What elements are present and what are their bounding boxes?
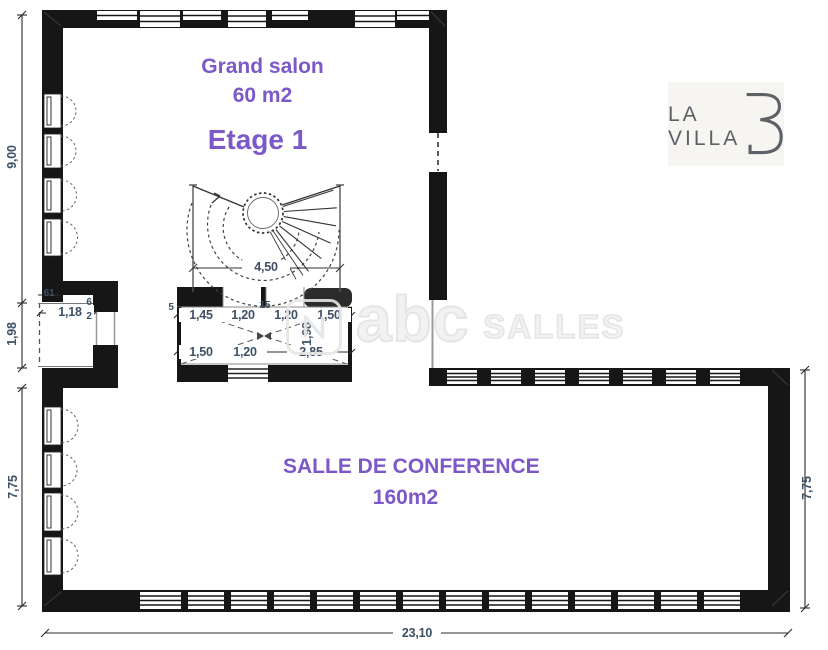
dim-shaft-small-left: 5	[166, 302, 176, 313]
dim-shaft-bottom-2: 1,20	[223, 345, 267, 359]
top-wall-windows	[97, 11, 433, 27]
floorplan-page: Grand salon 60 m2 Etage 1 SALLE DE CONFE…	[0, 0, 828, 650]
brand-b-icon	[744, 86, 784, 162]
dim-left-top: 9,00	[5, 137, 19, 177]
dim-left-bottom: 7,75	[6, 467, 20, 507]
dim-shaft-bottom-1: 1,50	[179, 345, 223, 359]
conference-area-label: 160m2	[283, 486, 528, 510]
dim-terrace-small-a: 6	[84, 297, 94, 308]
floor-label: Etage 1	[175, 124, 340, 156]
dim-right: 7,75	[800, 468, 814, 508]
brand-logo: LA VILLA	[668, 82, 784, 166]
dim-terrace-top: 61	[38, 288, 60, 299]
brand-line1: LA	[668, 103, 740, 127]
brand-line2: VILLA	[668, 127, 740, 151]
conference-name-label: SALLE DE CONFERENCE	[283, 455, 528, 479]
dim-bottom-total: 23,10	[393, 626, 441, 640]
dim-left-terrace: 1,98	[5, 314, 19, 354]
dim-terrace-small-b: 2	[84, 311, 94, 322]
salon-name-label: Grand salon	[180, 55, 345, 79]
dim-shaft-top-1: 1,45	[179, 308, 223, 322]
dim-stair-width: 4,50	[242, 260, 290, 274]
salon-area-label: 60 m2	[180, 84, 345, 108]
dim-shaft-bottom-3: 2,85	[287, 345, 335, 359]
